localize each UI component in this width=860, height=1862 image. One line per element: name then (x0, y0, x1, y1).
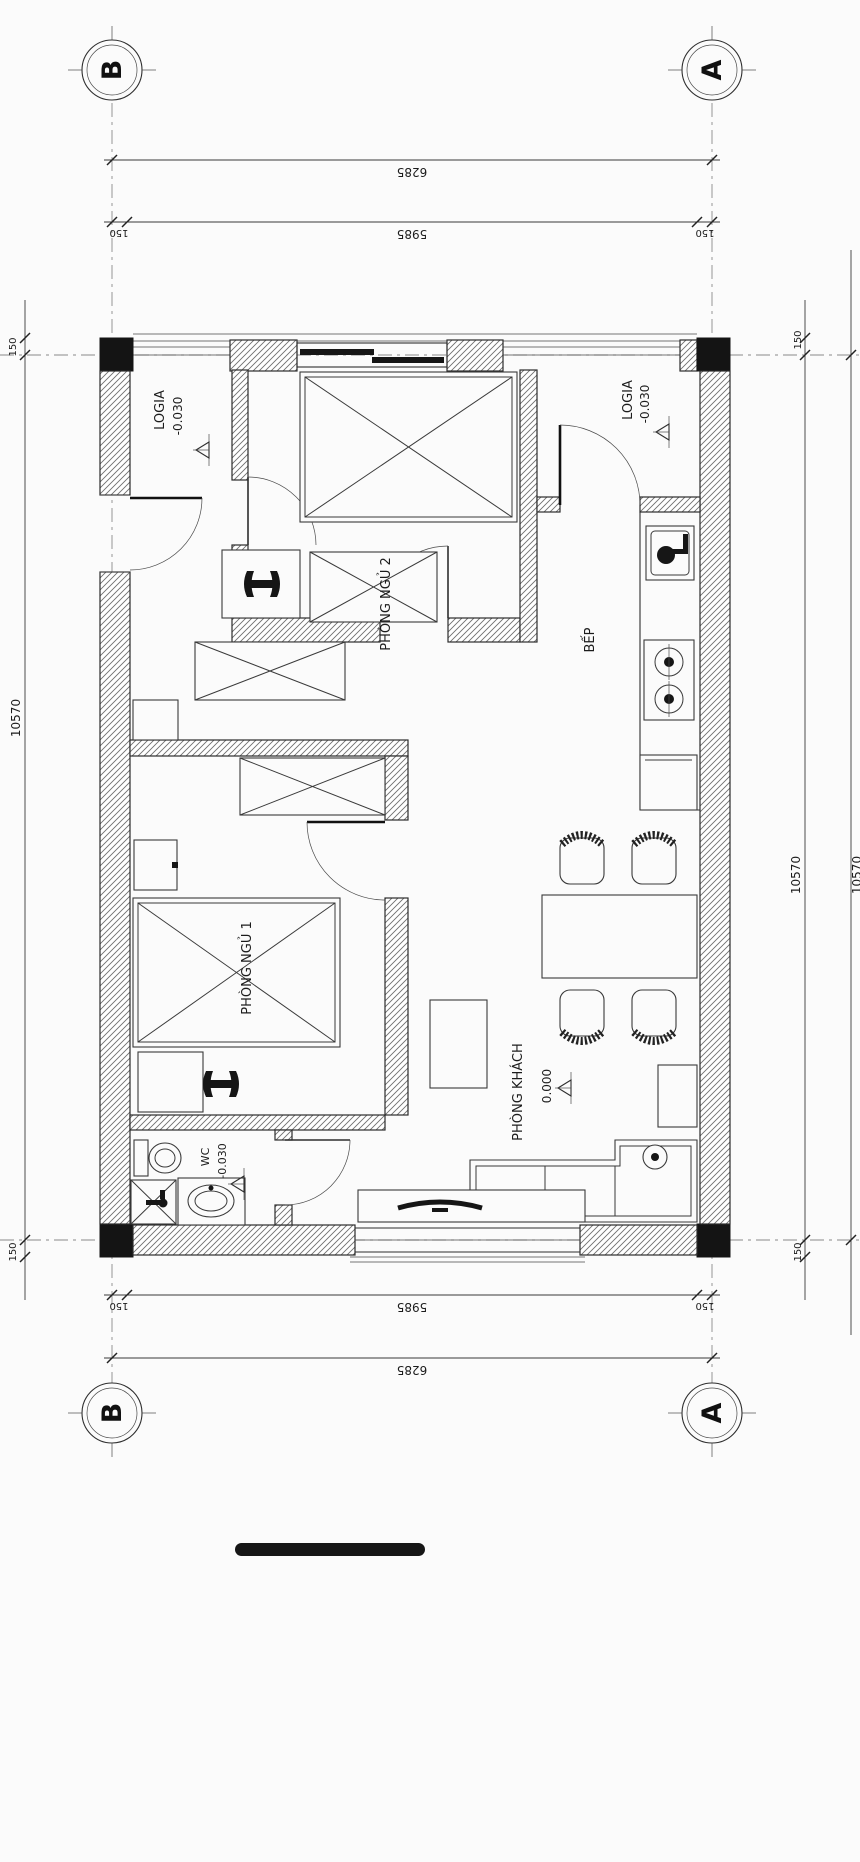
tv-console-symbol (358, 1190, 585, 1222)
column-bottom-right (697, 1224, 730, 1257)
level-logia-left: -0.030 (171, 397, 185, 436)
bed-symbol (133, 898, 340, 1047)
page-indicator-bar (235, 1543, 425, 1556)
grid-bubble-B-bottom: B (68, 1383, 156, 1457)
dim-top-clear: 5985 (397, 227, 428, 241)
wardrobe-symbol (240, 758, 385, 815)
wc-basin-icon (178, 1178, 245, 1225)
dim-bottom-clear: 5985 (397, 1300, 428, 1314)
floor-lamp-icon (643, 1145, 667, 1169)
room-label-wc: WC (199, 1147, 212, 1166)
bedroom1-furniture (133, 758, 385, 1112)
dim-top-offset-right: 150 (695, 227, 714, 238)
column-top-right (697, 338, 730, 371)
kitchen-fixtures (640, 512, 700, 810)
axis-label-b-bottom: B (97, 1403, 128, 1424)
dim-right-outer-total: 10570 (850, 856, 860, 894)
axis-label-a-bottom: A (697, 1402, 728, 1423)
window-living (350, 1228, 585, 1262)
dining-chair-icon (632, 990, 676, 1041)
room-label-bedroom2: PHÒNG NGỦ 2 (377, 557, 394, 651)
wardrobe-symbol (310, 552, 437, 622)
door-entry (130, 498, 202, 570)
dimension-left: 10570 150 150 (8, 300, 30, 1300)
dim-top-offset-left: 150 (109, 227, 128, 238)
dim-bottom-offset-left: 150 (109, 1300, 128, 1311)
dim-bottom-offset-right: 150 (695, 1300, 714, 1311)
room-label-living: PHÒNG KHÁCH (510, 1043, 526, 1141)
dim-left-offset-top: 150 (8, 337, 19, 356)
column-bottom-left (100, 1224, 133, 1257)
dining-chair-icon (560, 990, 604, 1041)
door-logia-right (560, 425, 640, 505)
kitchen-cabinet-symbol (640, 755, 697, 810)
nightstand-symbol (134, 840, 178, 890)
dimension-top: 6285 5985 150 150 (104, 155, 720, 241)
dim-right-offset-bottom: 150 (793, 1242, 804, 1261)
dining-chair-icon (632, 835, 676, 884)
floor-plan-sheet: B A B A 6285 5985 150 150 5985 150 150 (0, 0, 860, 1862)
dim-right-total: 10570 (789, 856, 803, 894)
side-table-symbol (658, 1065, 697, 1127)
kitchen-sink-icon (646, 526, 694, 580)
toilet-icon (134, 1140, 181, 1176)
room-label-bedroom1: PHÒNG NGỦ 1 (238, 921, 255, 1015)
room-label-logia-left: LOGIA (153, 390, 168, 430)
level-marker-icon (193, 434, 209, 466)
dim-left-total: 10570 (9, 699, 23, 737)
column-top-left (100, 338, 133, 371)
stove-icon (644, 640, 694, 720)
desk-symbol (138, 1052, 203, 1112)
grid-bubble-B-top: B (68, 26, 156, 100)
living-dining-furniture (358, 835, 697, 1222)
grid-bubble-A-top: A (668, 26, 756, 100)
grid-bubble-A-bottom: A (668, 1383, 756, 1457)
dim-right-offset-top: 150 (793, 330, 804, 349)
dining-table-symbol (542, 895, 697, 978)
dim-left-offset-bottom: 150 (8, 1242, 19, 1261)
level-logia-right: -0.030 (638, 385, 652, 424)
coffee-table-symbol (430, 1000, 487, 1088)
axis-label-b-top: B (97, 60, 128, 81)
axis-label-a-top: A (697, 59, 728, 80)
entry-closet-symbol (133, 700, 178, 740)
level-marker-icon (653, 416, 669, 448)
dim-bottom-total: 6285 (397, 1363, 428, 1377)
bedroom2-furniture (222, 372, 517, 622)
door-wc (285, 1140, 350, 1205)
dimension-right: 10570 150 150 10570 (789, 250, 860, 1335)
dining-chair-icon (560, 835, 604, 884)
dimension-bottom: 5985 150 150 6285 (104, 1290, 720, 1377)
room-label-kitchen: BẾP (581, 627, 598, 652)
level-marker-icon (555, 1072, 571, 1104)
room-label-logia-right: LOGIA (621, 380, 636, 420)
hall-cabinet-symbol (195, 642, 345, 700)
door-bedroom1 (307, 822, 385, 900)
level-living: 0.000 (540, 1069, 554, 1103)
dim-top-total: 6285 (397, 165, 428, 179)
floor-plan-drawing: B A B A 6285 5985 150 150 5985 150 150 (0, 0, 860, 1862)
chair-icon (203, 1071, 239, 1097)
bed-symbol (300, 372, 517, 522)
level-wc: -0.030 (216, 1143, 229, 1178)
hall-furniture (133, 642, 345, 740)
